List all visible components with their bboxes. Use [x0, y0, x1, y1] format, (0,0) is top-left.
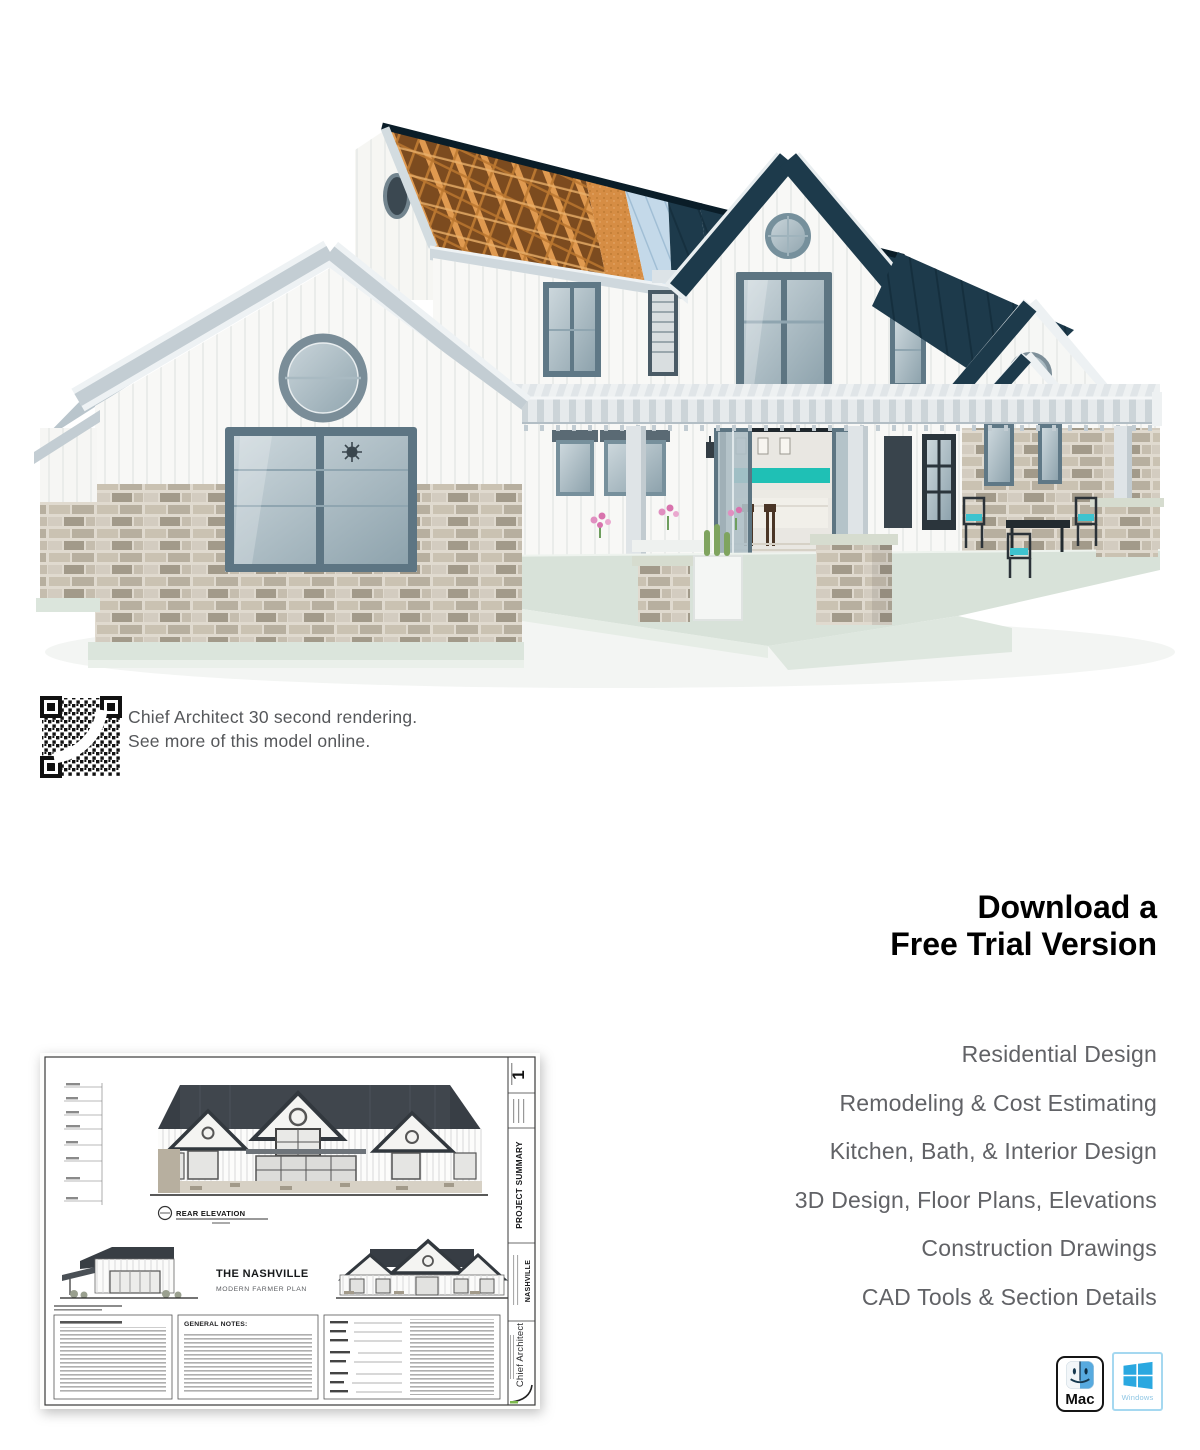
sun-medallion-icon	[342, 442, 362, 462]
cta-heading-line2: Free Trial Version	[890, 926, 1157, 962]
round-gable-window	[283, 338, 363, 418]
mac-label: Mac	[1065, 1391, 1094, 1408]
notes-box-general: GENERAL NOTES:	[178, 1315, 318, 1399]
porch-window	[552, 430, 598, 496]
rear-elevation-drawing	[150, 1085, 488, 1195]
louvered-window	[648, 290, 678, 376]
center-picture-window	[736, 272, 832, 394]
plan-name-label: NASHVILLE	[525, 1260, 532, 1302]
plan-subtitle: MODERN FARMER PLAN	[216, 1286, 307, 1293]
notes-box-project-info	[324, 1315, 500, 1399]
stone-window	[984, 424, 1014, 486]
feature-item: 3D Design, Floor Plans, Elevations	[795, 1176, 1157, 1225]
french-door	[922, 434, 956, 530]
windows-download-badge[interactable]: Windows	[1112, 1352, 1163, 1411]
qr-code	[40, 696, 122, 778]
rear-elevation-label: REAR ELEVATION	[176, 1209, 245, 1218]
house-rendering-illustration	[0, 0, 1200, 700]
mac-download-badge[interactable]: Mac	[1056, 1356, 1104, 1412]
plan-title: THE NASHVILLE	[216, 1268, 309, 1280]
feature-item: Kitchen, Bath, & Interior Design	[795, 1127, 1157, 1176]
blueprint-sheet: REAR ELEVATION THE NASHVILLE MODERN FARM…	[40, 1053, 540, 1409]
round-window	[768, 216, 808, 256]
stone-window	[1038, 424, 1062, 484]
back-door	[884, 436, 912, 528]
finder-face-icon	[1066, 1361, 1094, 1389]
windows-label: Windows	[1122, 1393, 1154, 1402]
upper-window	[543, 282, 601, 377]
notes-box-copyright	[54, 1315, 172, 1399]
project-summary-label: PROJECT SUMMARY	[515, 1141, 524, 1229]
left-extension	[34, 410, 100, 612]
cta-heading-line1: Download a	[977, 889, 1157, 925]
windows-logo-icon	[1123, 1361, 1153, 1390]
qr-caption-line1: Chief Architect 30 second rendering.	[128, 706, 458, 730]
cta-heading: Download a Free Trial Version	[890, 889, 1157, 963]
general-notes-heading: GENERAL NOTES:	[184, 1321, 247, 1328]
feature-list: Residential Design Remodeling & Cost Est…	[795, 1030, 1157, 1321]
feature-item: CAD Tools & Section Details	[795, 1273, 1157, 1322]
qr-caption-line2: See more of this model online.	[128, 730, 458, 754]
feature-item: Construction Drawings	[795, 1224, 1157, 1273]
brand-label: Chief Architect	[515, 1323, 526, 1387]
left-wing-window	[225, 427, 417, 573]
platform-badges: Mac Windows	[1056, 1352, 1176, 1422]
porch-pergola	[488, 384, 1162, 428]
brochure-page: Chief Architect 30 second rendering. See…	[0, 0, 1200, 1450]
feature-item: Remodeling & Cost Estimating	[795, 1079, 1157, 1128]
feature-item: Residential Design	[795, 1030, 1157, 1079]
